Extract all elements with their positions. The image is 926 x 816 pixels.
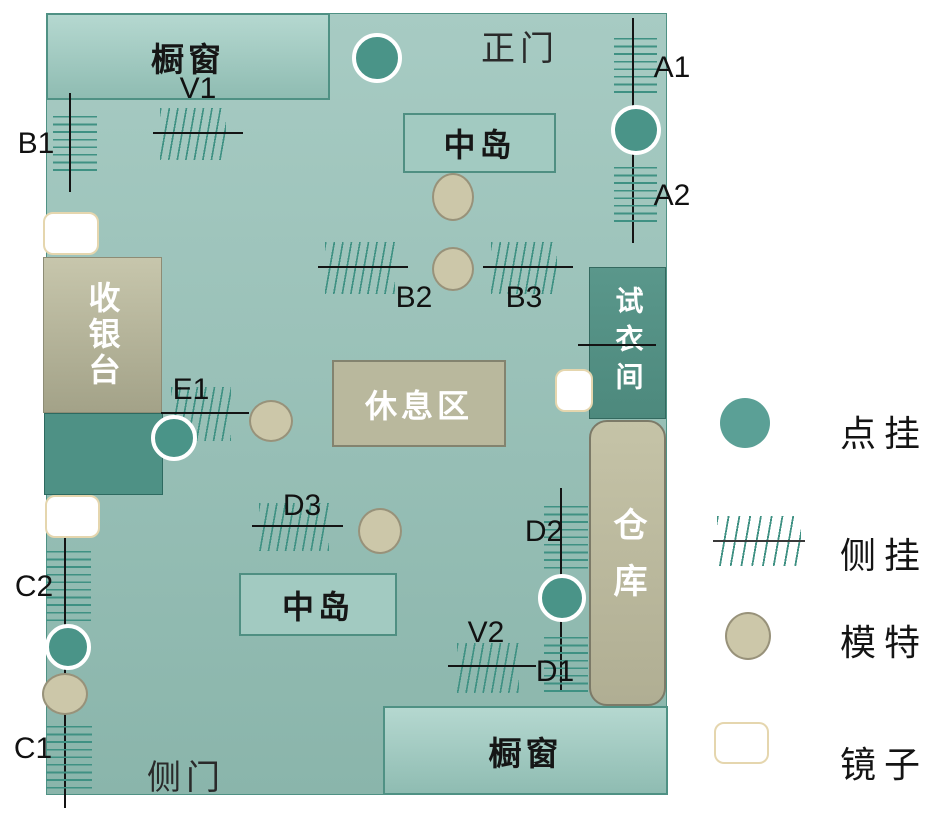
fitting-room-label: 试衣间	[608, 286, 648, 400]
area-rest-area: 休息区	[332, 360, 506, 447]
mannequin-legend-icon	[725, 612, 771, 660]
rack-D3-label: D3	[283, 489, 321, 523]
rack-V1-line	[153, 132, 243, 134]
rack-D2-label: D2	[525, 515, 563, 549]
rack-B3-label: B3	[506, 281, 543, 315]
rack-V2-hatch	[457, 643, 519, 693]
area-center-island-top: 中岛	[403, 113, 556, 173]
legend-label-side-hang: 侧挂	[840, 527, 926, 579]
rack-B2-hatch	[325, 242, 395, 294]
center-island-bottom-label: 中岛	[282, 582, 354, 628]
rack-E1-line	[161, 412, 249, 414]
rack-C2-label: C2	[15, 570, 53, 604]
mannequin	[42, 673, 88, 715]
area-cashier-annex	[44, 413, 163, 495]
rack-V1-hatch	[160, 108, 226, 160]
rack-B1-hatch	[53, 116, 97, 176]
rack-C1-label: C1	[14, 732, 52, 766]
area-fitting-room: 试衣间	[589, 267, 666, 419]
point-hang-dot-a	[611, 105, 661, 155]
point-hang-legend-icon	[720, 398, 770, 448]
store-floorplan: 橱窗 中岛 收银台 休息区 试衣间 仓库 中岛 橱窗 正门 侧门 V1B1A1A…	[0, 0, 926, 816]
point-hang-dot-c	[45, 624, 91, 670]
area-display-window-bottom: 橱窗	[383, 706, 668, 795]
legend-label-mannequin: 模特	[840, 614, 926, 666]
rack-A1-hatch	[614, 38, 657, 94]
mannequin	[432, 247, 474, 291]
rack-V2-line	[448, 665, 536, 667]
mannequin	[358, 508, 402, 554]
rack-D3-line	[252, 525, 343, 527]
warehouse-label: 仓库	[603, 507, 652, 619]
mirror	[555, 369, 593, 412]
rest-area-label: 休息区	[365, 381, 473, 427]
mirror-legend-icon	[714, 722, 769, 764]
legend-label-point-hang: 点挂	[840, 405, 926, 457]
rack-D1-label: D1	[536, 655, 574, 689]
rack-fitting-room-line	[578, 344, 656, 346]
rack-B3-line	[483, 266, 573, 268]
side-entrance-label: 侧门	[147, 750, 225, 799]
mannequin	[249, 400, 293, 442]
rack-A2-hatch	[614, 167, 657, 225]
area-cashier-counter: 收银台	[43, 257, 162, 413]
rack-V2-label: V2	[468, 616, 505, 650]
mannequin	[432, 173, 474, 221]
area-center-island-bottom: 中岛	[239, 573, 397, 636]
point-hang-dot-entrance	[352, 33, 402, 83]
rack-C1-hatch	[46, 726, 92, 789]
point-hang-dot-e1	[151, 415, 197, 461]
display-window-bottom-label: 橱窗	[489, 727, 563, 775]
rack-B2-line	[318, 266, 408, 268]
side-hang-line-icon	[713, 540, 805, 542]
center-island-top-label: 中岛	[443, 120, 515, 166]
mirror	[45, 495, 100, 538]
rack-A2-label: A2	[654, 179, 691, 213]
mirror	[43, 212, 99, 255]
rack-B1-label: B1	[18, 127, 55, 161]
main-entrance-label: 正门	[481, 21, 559, 70]
area-warehouse: 仓库	[589, 420, 666, 706]
rack-B1-line	[69, 93, 71, 192]
rack-E1-label: E1	[173, 373, 210, 407]
cashier-label: 收银台	[80, 281, 126, 389]
legend-label-mirror: 镜子	[840, 736, 926, 788]
rack-V1-label: V1	[180, 72, 217, 106]
rack-A1-label: A1	[654, 51, 691, 85]
rack-B2-label: B2	[396, 281, 433, 315]
point-hang-dot-d	[538, 574, 586, 622]
